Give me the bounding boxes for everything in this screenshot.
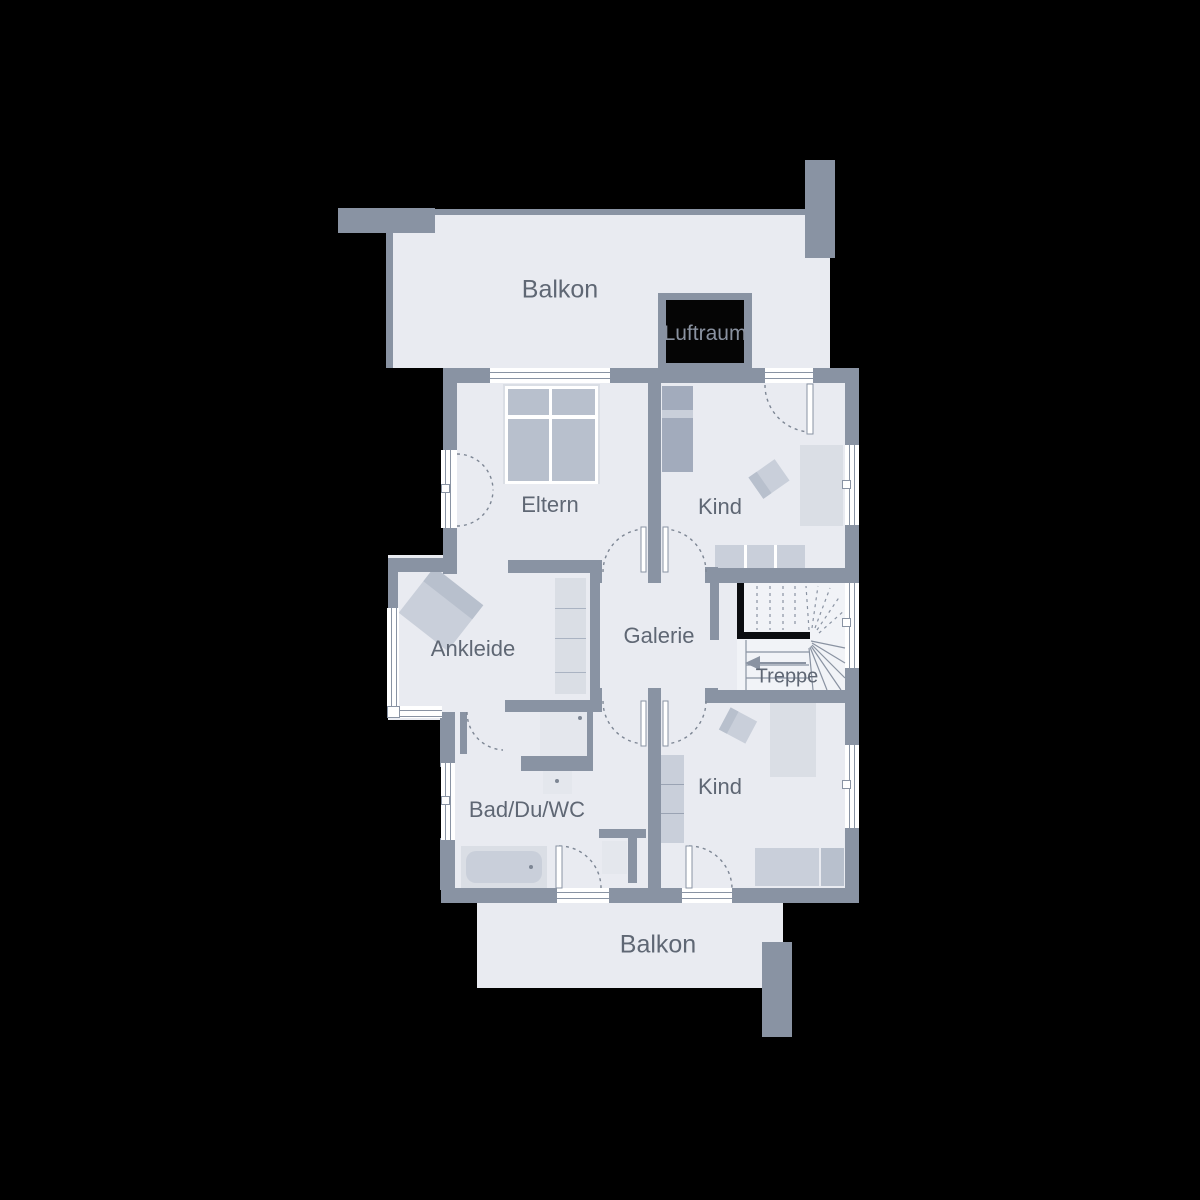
window-handle [842,618,851,627]
bed-child-bottom [770,695,816,777]
wall-parents-south [508,560,602,573]
window-handle [441,796,450,805]
wall-balcony-top-rail [435,209,805,215]
floor-plan-canvas: Balkon Luftraum [0,0,1200,1200]
wall-shower-partition [521,756,593,771]
wall-parents-child-divider [648,383,661,583]
shower-head-dot [578,716,582,720]
sideboard-child-bottom-end [821,848,844,886]
wall-stairs-south [711,690,845,703]
label-parents: Eltern [521,492,578,518]
label-void: Luftraum [664,322,747,346]
wall-balcony-top-left-block [338,208,435,233]
wall-pillar-top-right [805,160,835,258]
bed-parents-pillow-left [508,389,549,415]
wall-exterior-left-upper [443,368,457,452]
wall-shower-side [587,712,593,758]
wall-dressing-step [388,558,457,572]
wall-pillar-bottom-right [762,942,792,1037]
window-parents-north [490,368,610,383]
wardrobe-line [555,608,586,609]
window-handle [842,780,851,789]
wardrobe-line [555,672,586,673]
wardrobe-dressing [555,578,586,694]
wall-dressing-west [388,570,398,610]
window-handle [441,484,450,493]
bed-parents-mattress-left [508,419,549,481]
wall-child-top-south [711,568,845,583]
wall-exterior-left-lower-a [440,712,455,767]
wardrobe-shelf-line [662,410,693,418]
window-handle [842,480,851,489]
french-window-dressing-west [387,608,399,710]
bed-parents-mattress-right [552,419,595,481]
wall-dressing-south [505,700,590,712]
sideboard-child-bottom [755,848,819,886]
balcony-top-floor-ext [805,258,830,368]
label-gallery: Galerie [624,623,695,649]
wall-exterior-left-lower-b [440,838,455,890]
wardrobe-line [555,638,586,639]
label-dressing: Ankleide [431,636,515,662]
balcony-door-child-top [765,368,813,383]
label-balcony-top: Balkon [522,276,598,305]
wall-exterior-bottom [441,888,859,903]
balcony-door-bath [557,888,609,903]
wall-bath-child-divider [648,688,661,888]
wall-stairs-west-stub [710,583,719,640]
wall-wc-partition-h [599,829,646,838]
bed-parents-pillow-right [552,389,595,415]
wall-balcony-left-rail [386,233,393,368]
washbasin-tap-dot [555,779,559,783]
label-child-bottom: Kind [698,774,742,800]
wall-dressing-east [590,573,600,700]
bathtub-drain-dot [529,865,533,869]
railing-corner-post [387,706,400,718]
desk-child-top [800,445,843,526]
toilet [602,841,627,874]
label-balcony-bottom: Balkon [620,931,696,960]
label-child-top: Kind [698,494,742,520]
label-bath: Bad/Du/WC [469,797,585,823]
balcony-door-child-bottom [682,888,732,903]
label-stairs: Treppe [756,666,819,689]
wardrobe-child-top [662,386,693,472]
door-leaf-dressing-bath [460,712,467,754]
wall-wc-partition-v [628,838,637,883]
